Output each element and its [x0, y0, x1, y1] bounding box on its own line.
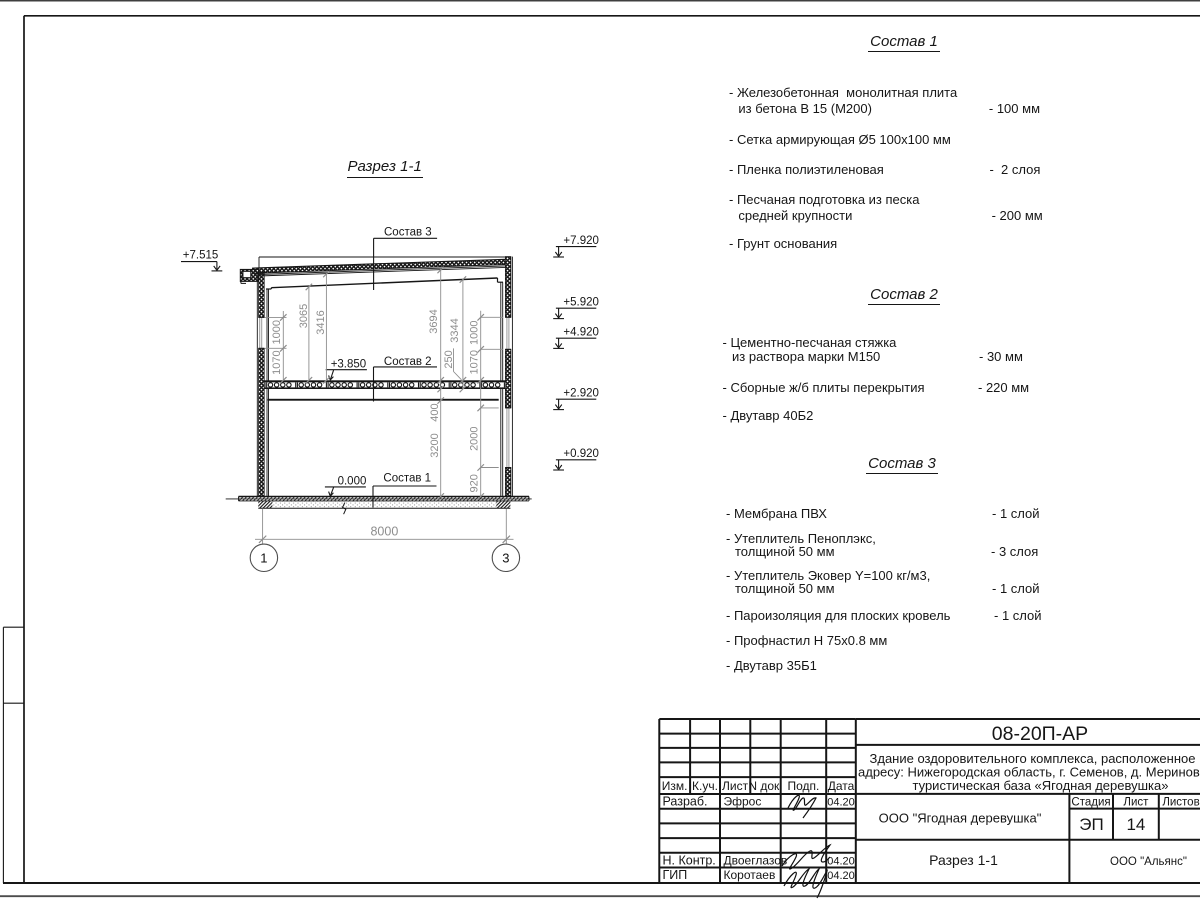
- svg-text:+7.920: +7.920: [563, 235, 599, 247]
- svg-text:+2.920: +2.920: [563, 388, 599, 400]
- svg-text:920: 920: [469, 474, 481, 492]
- svg-text:04.20: 04.20: [827, 870, 855, 882]
- svg-text:Коротаев: Коротаев: [724, 868, 776, 882]
- svg-text:Лист: Лист: [1123, 796, 1149, 808]
- svg-text:08-20П-АР: 08-20П-АР: [992, 723, 1088, 745]
- svg-text:Н. Контр.: Н. Контр.: [663, 854, 716, 868]
- svg-text:N док.: N док.: [748, 779, 782, 793]
- svg-text:+5.920: +5.920: [563, 297, 599, 309]
- svg-text:ООО "Ягодная деревушка": ООО "Ягодная деревушка": [879, 810, 1042, 825]
- svg-text:Подп.: Подп.: [787, 779, 819, 793]
- svg-text:Лист: Лист: [722, 779, 749, 793]
- svg-text:3416: 3416: [315, 310, 327, 334]
- svg-text:1: 1: [260, 550, 267, 565]
- svg-text:Изм.: Изм.: [662, 779, 688, 793]
- svg-text:3: 3: [502, 550, 509, 565]
- svg-text:14: 14: [1126, 815, 1145, 834]
- svg-text:+4.920: +4.920: [563, 327, 599, 339]
- svg-text:1070: 1070: [271, 350, 283, 374]
- svg-text:8000: 8000: [370, 524, 398, 538]
- svg-text:К.уч.: К.уч.: [692, 779, 718, 793]
- svg-text:3200: 3200: [429, 433, 441, 457]
- svg-text:Разраб.: Разраб.: [663, 795, 708, 809]
- svg-text:1000: 1000: [469, 321, 481, 345]
- svg-text:Состав 3: Состав 3: [384, 227, 432, 239]
- svg-text:+0.920: +0.920: [563, 448, 599, 460]
- svg-text:3065: 3065: [298, 304, 310, 328]
- svg-text:1070: 1070: [469, 350, 481, 374]
- svg-text:ЭП: ЭП: [1079, 815, 1103, 834]
- svg-text:ООО "Альянс": ООО "Альянс": [1110, 856, 1187, 868]
- svg-text:2000: 2000: [469, 426, 481, 450]
- svg-text:+7.515: +7.515: [183, 249, 219, 261]
- svg-text:3344: 3344: [449, 318, 461, 342]
- svg-text:04.20: 04.20: [827, 797, 855, 809]
- svg-text:Дата: Дата: [828, 779, 855, 793]
- svg-text:3694: 3694: [428, 309, 440, 333]
- svg-text:ГИП: ГИП: [663, 868, 688, 882]
- svg-text:0.000: 0.000: [338, 476, 367, 488]
- svg-text:Листов: Листов: [1162, 796, 1199, 808]
- svg-text:400: 400: [429, 403, 441, 421]
- svg-text:1000: 1000: [271, 320, 283, 344]
- svg-text:04.20: 04.20: [827, 856, 855, 868]
- svg-text:Разрез 1-1: Разрез 1-1: [929, 852, 998, 868]
- svg-text:туристическая база «Ягодная де: туристическая база «Ягодная деревушка»: [913, 778, 1169, 793]
- svg-text:Двоеглазов: Двоеглазов: [724, 854, 788, 868]
- svg-text:Состав 2: Состав 2: [384, 356, 432, 368]
- svg-text:Эфрос: Эфрос: [724, 795, 762, 809]
- svg-text:Стадия: Стадия: [1071, 796, 1110, 808]
- svg-text:Состав 1: Состав 1: [383, 473, 431, 485]
- svg-text:+3.850: +3.850: [331, 359, 367, 371]
